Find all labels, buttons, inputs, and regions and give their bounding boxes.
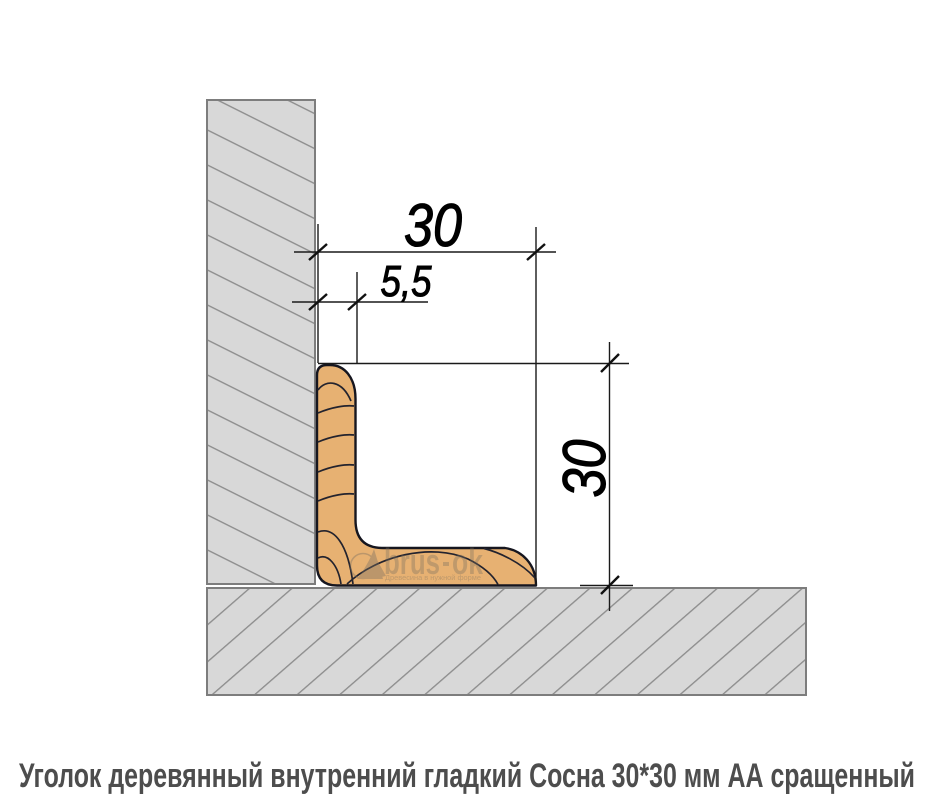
svg-text:Древесина в нужной форме: Древесина в нужной форме: [385, 574, 481, 582]
svg-text:30: 30: [404, 192, 462, 259]
svg-text:5,5: 5,5: [381, 257, 432, 306]
svg-text:30: 30: [551, 440, 618, 498]
svg-text:Уголок деревянный внутренний г: Уголок деревянный внутренний гладкий Сос…: [19, 757, 915, 795]
